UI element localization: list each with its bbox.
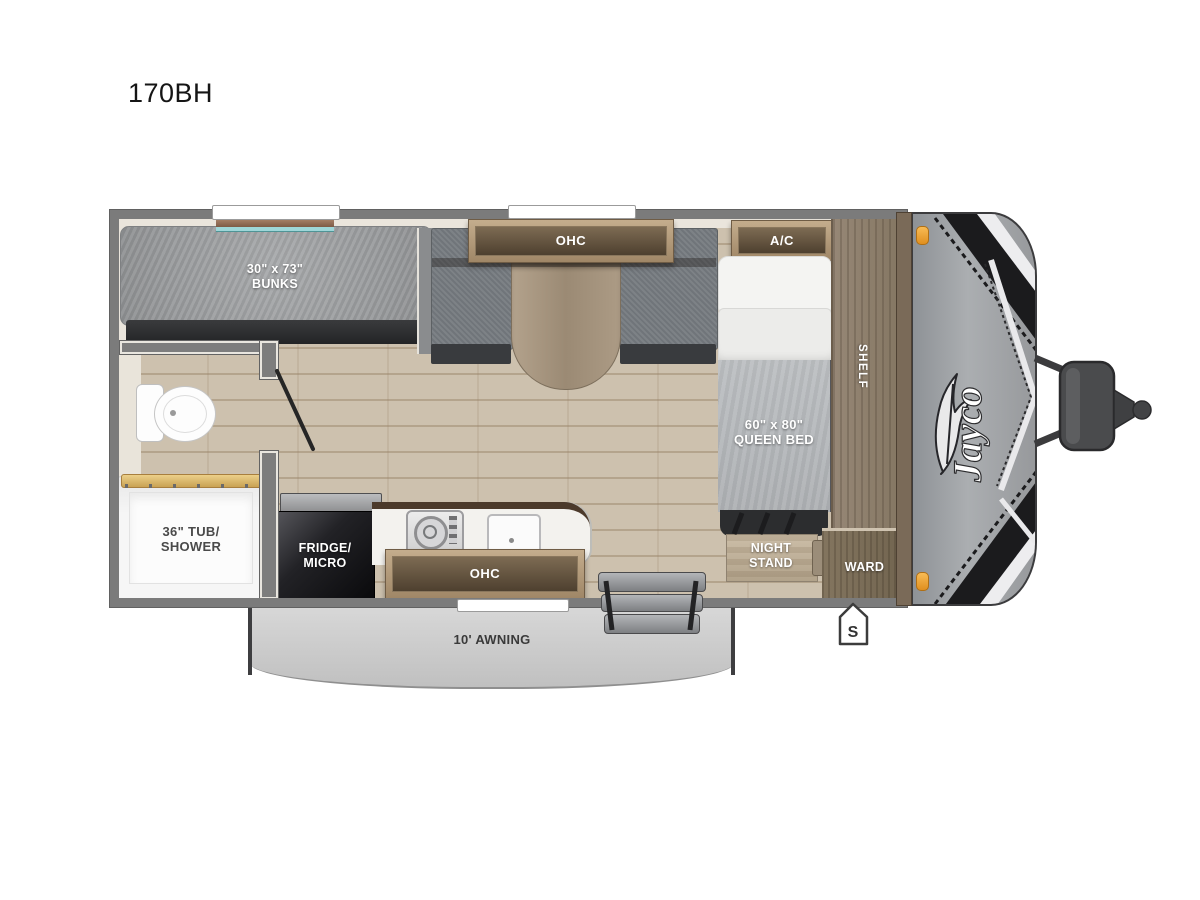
entry-step-1 bbox=[598, 572, 706, 592]
hitch-ball bbox=[1133, 401, 1151, 419]
floorplan-page: 170BH 10' AWNING 30" x 73" BUNKS 36" TUB… bbox=[0, 0, 1200, 900]
trailer-wall-frame bbox=[110, 210, 907, 607]
front-bulkhead bbox=[896, 212, 912, 606]
awning-label: 10' AWNING bbox=[412, 632, 572, 647]
cap-swoosh-upper bbox=[943, 214, 1037, 344]
window-dinette bbox=[508, 205, 636, 219]
cap-swoosh-lower bbox=[943, 478, 1037, 606]
awning-arm-right bbox=[731, 605, 735, 675]
entry-step-2 bbox=[601, 594, 703, 612]
hitch-coupler bbox=[1114, 390, 1134, 429]
jayco-logo-text: Jayco bbox=[945, 386, 990, 483]
propane-tank-highlight bbox=[1066, 368, 1080, 444]
propane-tank bbox=[1060, 362, 1114, 450]
a-frame-bar-top bbox=[1035, 358, 1073, 374]
s-marker-letter: S bbox=[848, 624, 859, 641]
front-cap: Jayco bbox=[911, 212, 1037, 606]
hitch-assembly bbox=[1035, 358, 1151, 450]
entry-step-3 bbox=[604, 614, 700, 634]
a-frame-bar-bottom bbox=[1035, 428, 1073, 444]
jayco-logo: Jayco bbox=[936, 374, 990, 483]
door-side-marker: S bbox=[840, 604, 867, 644]
front-cap-graphics: Jayco bbox=[913, 214, 1037, 606]
window-bunk bbox=[212, 205, 340, 220]
page-title: 170BH bbox=[128, 78, 213, 109]
awning-arm-left bbox=[248, 605, 252, 675]
clearance-light-top bbox=[916, 226, 929, 245]
window-kitchen bbox=[457, 599, 569, 612]
clearance-light-bottom bbox=[916, 572, 929, 591]
s-marker-tag bbox=[840, 604, 867, 644]
